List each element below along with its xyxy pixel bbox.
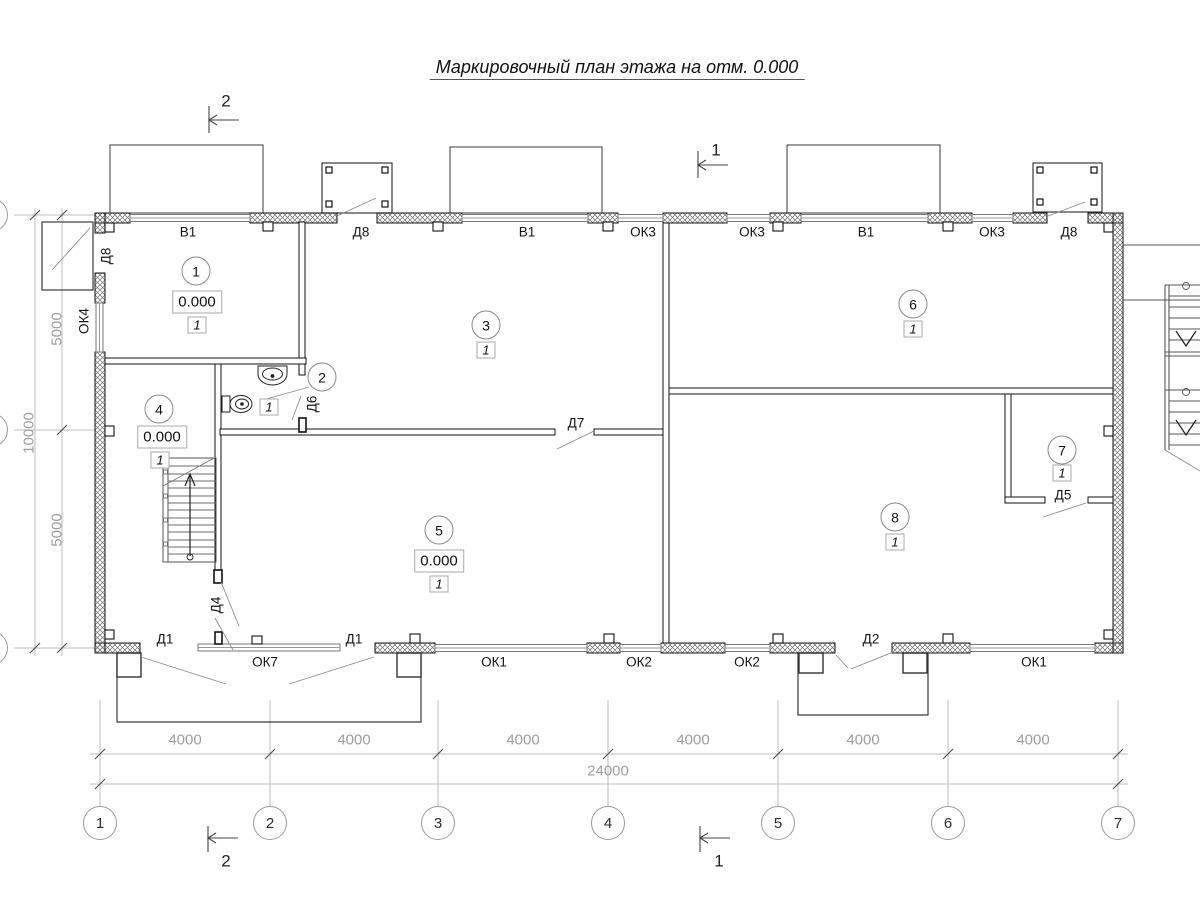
axis-bubble-7: 7 [1101, 806, 1135, 840]
section-mark-1-bottom: 1 [714, 853, 723, 870]
door-vestibule-boxes [117, 653, 927, 677]
floor-plan-drawing: Маркировочный план этажа на отм. 0.000 В… [0, 0, 1200, 900]
door-label-d7: Д7 [568, 416, 585, 430]
room-number-bubble: 5 [425, 516, 454, 545]
axis-bubble-4: 4 [591, 806, 625, 840]
room-finish-type: 1 [904, 321, 923, 338]
window-label-ok1: ОК1 [1021, 655, 1047, 669]
total-dimension: 24000 [587, 764, 629, 779]
room-finish-type: 1 [477, 342, 496, 359]
room-number-bubble: 2 [308, 363, 337, 392]
axis-bubble-3: 3 [421, 806, 455, 840]
window-label-ok7: ОК7 [252, 655, 278, 669]
door-label-d8: Д8 [1061, 225, 1078, 239]
room-number-bubble: 3 [472, 311, 501, 340]
door-label-d6: Д6 [305, 396, 319, 413]
door-label-d5: Д5 [1055, 488, 1072, 502]
window-label-b1: В1 [519, 225, 536, 239]
drawing-title: Маркировочный план этажа на отм. 0.000 [430, 58, 805, 80]
left-dimension-10000: 10000 [22, 412, 37, 454]
window-label-ok3: ОК3 [630, 225, 656, 239]
window-label-ok3: ОК3 [739, 225, 765, 239]
room-finish-type: 1 [886, 534, 905, 551]
room-number-bubble: 8 [881, 503, 910, 532]
room-elevation: 0.000 [414, 550, 464, 573]
bay-dimension: 4000 [676, 733, 709, 748]
door-label-d8: Д8 [353, 225, 370, 239]
room-number-bubble: 1 [182, 257, 211, 286]
room-number-bubble: 4 [145, 395, 174, 424]
room-finish-type: 1 [260, 399, 279, 416]
canopies [110, 145, 940, 213]
porch-posts [326, 167, 1097, 207]
door-label-d1: Д1 [157, 632, 174, 646]
bay-dimension: 4000 [168, 733, 201, 748]
window-label-ok4: ОК4 [77, 308, 91, 334]
door-label-d2: Д2 [863, 632, 880, 646]
window-label-b1: В1 [180, 225, 197, 239]
sink-fixture [258, 366, 287, 385]
section-mark-1-top: 1 [711, 142, 720, 159]
door-label-d4: Д4 [209, 597, 223, 614]
room-number-bubble: 7 [1048, 436, 1077, 465]
room-finish-type: 1 [1053, 465, 1072, 482]
window-label-ok3: ОК3 [979, 225, 1005, 239]
axis-bubble-1: 1 [83, 806, 117, 840]
window-label-b1: В1 [858, 225, 875, 239]
section-mark-2-top: 2 [221, 93, 230, 110]
door-label-d1: Д1 [346, 632, 363, 646]
window-label-ok1: ОК1 [481, 655, 507, 669]
window-label-ok2: ОК2 [734, 655, 760, 669]
axis-bubble-5: 5 [761, 806, 795, 840]
axis-bubble-6: 6 [931, 806, 965, 840]
room-finish-type: 1 [188, 317, 207, 334]
door-label-d8-left: Д8 [99, 248, 113, 265]
room-finish-type: 1 [151, 452, 170, 469]
room-elevation: 0.000 [137, 426, 187, 449]
interior-stairs [163, 457, 216, 562]
bay-dimension: 4000 [506, 733, 539, 748]
room-elevation: 0.000 [172, 291, 222, 314]
bay-dimension: 4000 [337, 733, 370, 748]
axis-bubble-2: 2 [253, 806, 287, 840]
left-dimension-5000: 5000 [50, 513, 65, 546]
external-stairs [1123, 245, 1200, 471]
interior-walls [105, 222, 1113, 643]
room-number-bubble: 6 [899, 290, 928, 319]
room-finish-type: 1 [430, 576, 449, 593]
section-mark-2-bottom: 2 [221, 853, 230, 870]
bay-dimension: 4000 [1016, 733, 1049, 748]
window-label-ok2: ОК2 [626, 655, 652, 669]
door-jambs [214, 418, 306, 644]
left-dimension-5000: 5000 [50, 312, 65, 345]
toilet-fixture [222, 396, 252, 413]
bay-dimension: 4000 [846, 733, 879, 748]
